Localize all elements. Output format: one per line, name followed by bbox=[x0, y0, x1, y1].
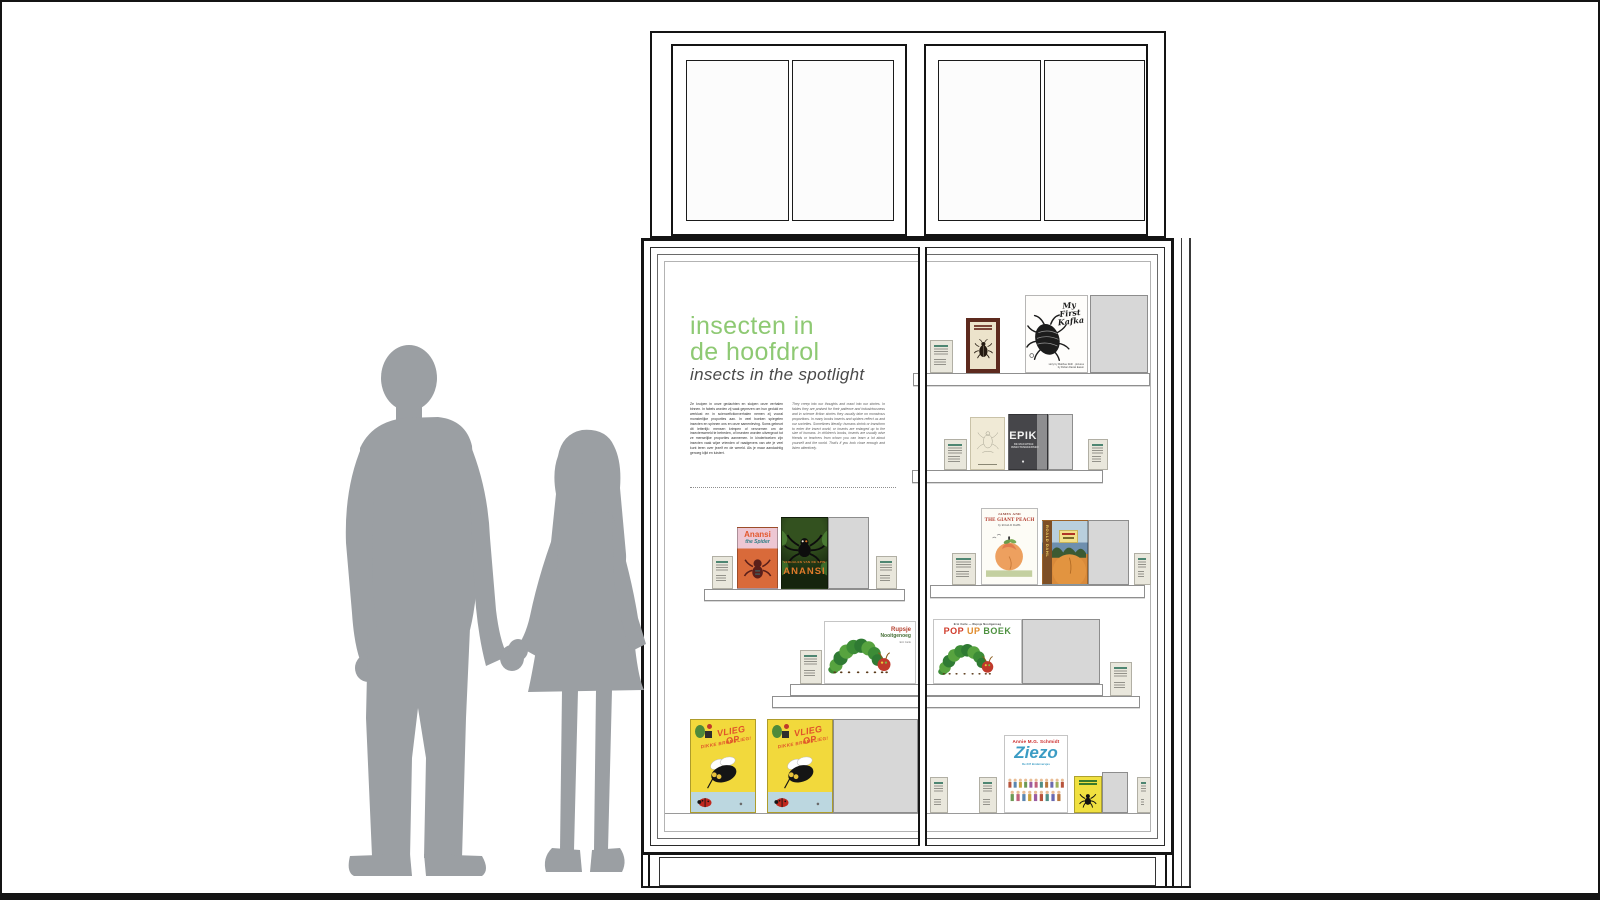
book-placeholder bbox=[1090, 295, 1148, 373]
book-my-first-kafka: My First Kafka story by Matthue Roth · p… bbox=[1025, 295, 1088, 373]
book-ziezo: Annie M.G. Schmidt Ziezo De 347 kinderve… bbox=[1004, 735, 1068, 813]
book-title-lines bbox=[974, 325, 992, 331]
book-james-giant-peach-nl: ROALD DAHL bbox=[1042, 520, 1088, 585]
object-label-card bbox=[712, 556, 733, 589]
cover-deco-oval bbox=[772, 725, 782, 738]
book-title: My First Kafka bbox=[1055, 300, 1085, 327]
object-label-card bbox=[800, 650, 822, 684]
book-rupsje-popup: Eric Carle — Rupsje Nooitgenoeg POP UP B… bbox=[933, 619, 1022, 684]
intro-text-english: They creep into our thoughts and crawl i… bbox=[792, 402, 885, 474]
floor-line bbox=[641, 886, 1191, 888]
book-title: Ziezo bbox=[1005, 744, 1067, 762]
window-pane bbox=[1044, 60, 1145, 221]
book-anansi-the-spider: Anansi the Spider bbox=[737, 527, 778, 589]
object-label-card bbox=[1088, 439, 1108, 470]
case-deck-line bbox=[665, 813, 1150, 814]
wall-return-line bbox=[1189, 238, 1191, 886]
exhibit-title-line1: insecten in bbox=[690, 313, 910, 339]
book-placeholder bbox=[828, 517, 869, 589]
book-title: EPIK bbox=[1009, 431, 1037, 442]
book-vlieg-op-1: VLIEG OP DIKKE BROMVLIEG! bbox=[690, 719, 756, 813]
book-epik: EPIK DE MACHTIGE INSECTENHEERSER ♦ bbox=[1008, 414, 1048, 470]
book-title-line2: Nooitgenoeg bbox=[871, 634, 911, 639]
cover-deco-dot bbox=[784, 724, 789, 729]
spider-illustration bbox=[1078, 787, 1098, 811]
book-credit: story by Matthue Roth · pictures by Roha… bbox=[1048, 363, 1084, 369]
case-center-mullion bbox=[918, 247, 927, 846]
shelf-ledge bbox=[930, 585, 1145, 598]
wall-return-line bbox=[1181, 238, 1182, 886]
fly-illustration bbox=[773, 748, 827, 796]
object-label-card bbox=[979, 777, 997, 813]
children-crowd-illustration bbox=[1007, 770, 1065, 810]
cover-title-label bbox=[1059, 530, 1079, 543]
book-caption-line bbox=[978, 464, 998, 466]
exhibit-title: insecten in de hoofdrol bbox=[690, 313, 910, 365]
book-beetle-album bbox=[966, 318, 1000, 373]
scale-figures bbox=[320, 338, 660, 898]
book-title: Anansi bbox=[738, 531, 777, 539]
object-label-card bbox=[1137, 777, 1151, 813]
cover-deco-dot bbox=[707, 724, 712, 729]
book-subtitle: the Spider bbox=[738, 540, 777, 545]
caterpillar-art bbox=[937, 635, 994, 682]
book-placeholder bbox=[1102, 772, 1128, 813]
book-placeholder bbox=[1022, 619, 1100, 684]
exhibit-design-elevation: insecten in de hoofdrol insects in the s… bbox=[0, 0, 1600, 900]
book-spine: ROALD DAHL bbox=[1043, 521, 1052, 584]
case-plinth bbox=[659, 857, 1156, 886]
dotted-divider bbox=[690, 487, 896, 488]
publisher-mark: ♦ bbox=[1009, 459, 1037, 465]
fly-illustration bbox=[696, 748, 750, 796]
jungle-spider-illustration bbox=[782, 518, 827, 588]
book-placeholder bbox=[1048, 414, 1073, 470]
ground-bar bbox=[0, 893, 1600, 900]
object-label-card bbox=[944, 439, 967, 470]
intro-text-dutch: Ze kruipen in onze gedachten en sluipen … bbox=[690, 402, 783, 474]
shelf-ledge bbox=[913, 373, 1150, 386]
book-vlieg-op-2: VLIEG OP DIKKE BROMVLIEG! bbox=[767, 719, 833, 813]
object-label-card bbox=[952, 553, 976, 585]
book-subtitle: De 347 kinderversjes bbox=[1005, 763, 1067, 766]
window-pane bbox=[792, 60, 894, 221]
object-label-card bbox=[1110, 662, 1132, 696]
book-title-line1: JAMES AND bbox=[982, 513, 1037, 517]
beetle-illustration bbox=[973, 331, 994, 366]
shelf-ledge bbox=[704, 589, 905, 601]
exhibit-title-line2: de hoofdrol bbox=[690, 339, 910, 365]
book-author: by ROALD DAHL bbox=[982, 524, 1037, 527]
object-label-card bbox=[930, 340, 953, 373]
book-james-giant-peach-en: JAMES AND THE GIANT PEACH by ROALD DAHL bbox=[981, 508, 1038, 585]
book-kicker: VERHALEN VAN DE SPIN bbox=[782, 561, 827, 564]
book-title: ANANSI bbox=[782, 567, 827, 577]
shelf-ledge bbox=[912, 470, 1103, 483]
girl-silhouette bbox=[508, 430, 646, 872]
peach-illustration bbox=[986, 529, 1032, 579]
object-label-card bbox=[1134, 553, 1151, 585]
exhibit-subtitle: insects in the spotlight bbox=[690, 365, 910, 385]
man-silhouette bbox=[346, 345, 524, 876]
book-placeholder bbox=[1088, 520, 1129, 585]
window-pane bbox=[686, 60, 789, 221]
book-placeholder bbox=[833, 719, 918, 813]
cover-deco-oval bbox=[695, 725, 705, 738]
shelf-ledge-lower bbox=[772, 696, 1140, 708]
book-insect-sketchbook bbox=[970, 417, 1005, 470]
shelf-ledge bbox=[790, 684, 1103, 696]
book-spider-rhymes bbox=[1074, 776, 1102, 813]
case-leg-right bbox=[1165, 855, 1174, 886]
book-credit: Eric Carle bbox=[871, 641, 911, 644]
ladybug-illustration bbox=[768, 792, 832, 812]
object-label-card bbox=[876, 556, 897, 589]
window-pane bbox=[938, 60, 1041, 221]
spider-illustration bbox=[742, 548, 773, 585]
cover-bottom-band bbox=[691, 792, 755, 812]
cover-bottom-band bbox=[768, 792, 832, 812]
book-subtitle: DE MACHTIGE INSECTENHEERSER bbox=[1011, 443, 1036, 450]
ladybug-illustration bbox=[691, 792, 755, 812]
book-anansi-nl: VERHALEN VAN DE SPIN ANANSI bbox=[781, 517, 828, 589]
insect-sketch-illustration bbox=[974, 423, 1002, 460]
object-label-card bbox=[930, 777, 948, 813]
spine-author: ROALD DAHL bbox=[1044, 525, 1051, 557]
book-rupsje-nooitgenoeg: Rupsje Nooitgenoeg Eric Carle bbox=[824, 621, 916, 684]
